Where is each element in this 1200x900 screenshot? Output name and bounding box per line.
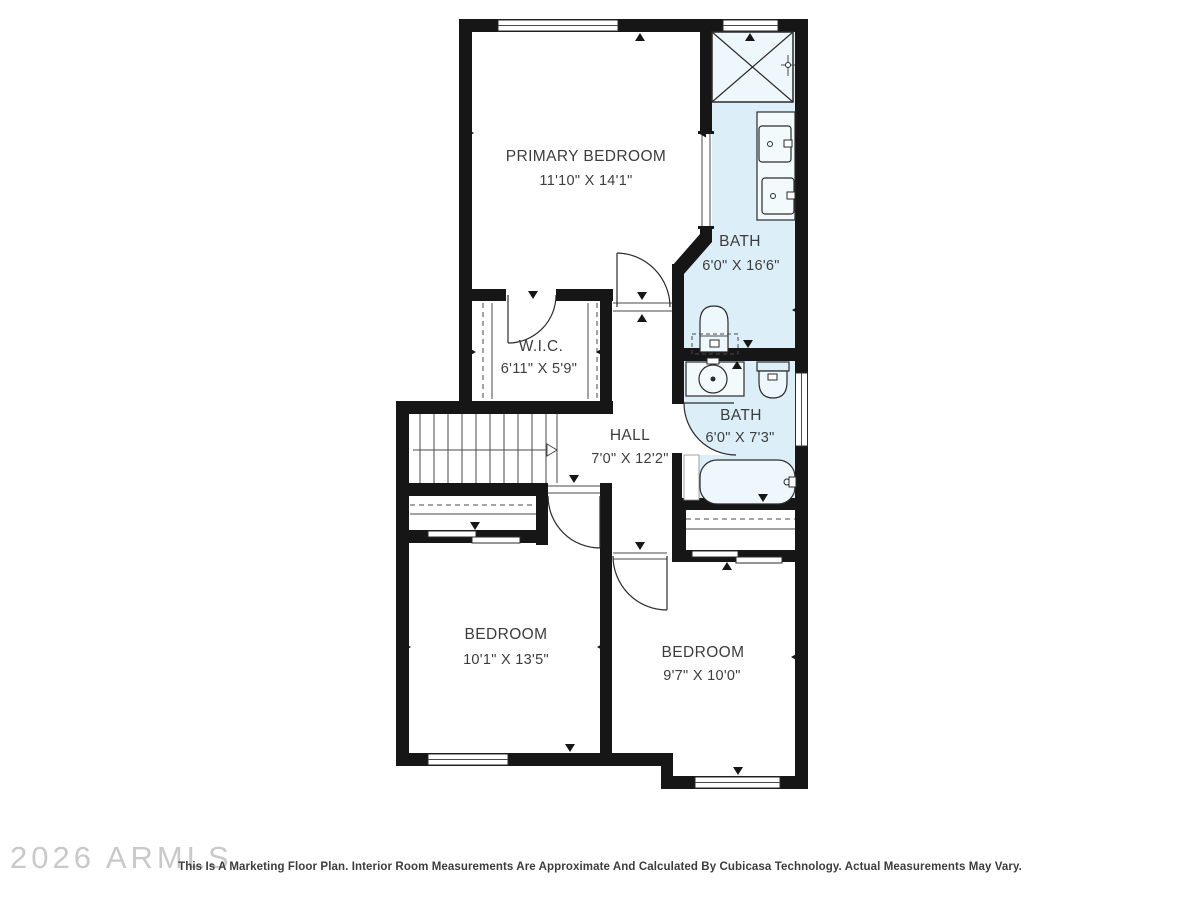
staircase [413,414,557,483]
room-label-hall: HALL [610,427,650,444]
room-label-wic: W.I.C. [519,338,564,355]
room-dims-bedroom-left: 10'1" X 13'5" [463,652,549,668]
sink-hall-bath-fixture [686,358,744,396]
room-dims-wic: 6'11" X 5'9" [501,361,577,377]
shower-fixture [712,32,795,102]
room-primary-bedroom: PRIMARY BEDROOM 11'10" X 14'1" [506,148,666,189]
double-vanity-fixture [757,112,795,220]
door-primary-hall [617,253,670,307]
window-bath-right [796,373,808,446]
room-dims-primary-bath: 6'0" X 16'6" [702,258,779,274]
window-primary-top [498,20,618,31]
room-label-hall-bath: BATH [720,407,762,424]
room-hall: HALL 7'0" X 12'2" [591,427,668,467]
room-dims-hall-bath: 6'0" X 7'3" [705,430,774,446]
room-label-primary-bedroom: PRIMARY BEDROOM [506,148,666,165]
room-bedroom-left: BEDROOM 10'1" X 13'5" [463,626,549,668]
opening-primary-bath [698,131,714,229]
door-bedroom-right [613,556,667,610]
floorplan-canvas: PRIMARY BEDROOM 11'10" X 14'1" BATH 6'0"… [0,0,1200,900]
marketing-disclaimer: This Is A Marketing Floor Plan. Interior… [0,861,1200,873]
window-bath-top [723,20,778,31]
opening-primary-hall [613,300,672,314]
opening-bedroom-right [613,550,667,562]
bathtub-fixture [700,460,796,504]
stairs-direction-arrow [413,444,557,456]
opening-bedroom-left [548,483,600,496]
room-bedroom-right: BEDROOM 9'7" X 10'0" [662,644,745,684]
window-bedroom-left-bottom [428,754,508,765]
room-dims-hall: 7'0" X 12'2" [591,451,668,467]
floorplan-svg: PRIMARY BEDROOM 11'10" X 14'1" BATH 6'0"… [0,0,1200,900]
room-dims-bedroom-right: 9'7" X 10'0" [663,668,740,684]
door-wic [508,295,556,343]
room-dims-primary-bedroom: 11'10" X 14'1" [539,173,632,189]
room-wic: W.I.C. 6'11" X 5'9" [501,338,577,377]
door-bedroom-left [548,496,600,548]
room-label-bedroom-right: BEDROOM [662,644,745,661]
room-label-bedroom-left: BEDROOM [465,626,548,643]
window-bedroom-right-bottom [695,777,780,788]
room-label-primary-bath: BATH [719,233,761,250]
linen-niche [684,455,699,500]
